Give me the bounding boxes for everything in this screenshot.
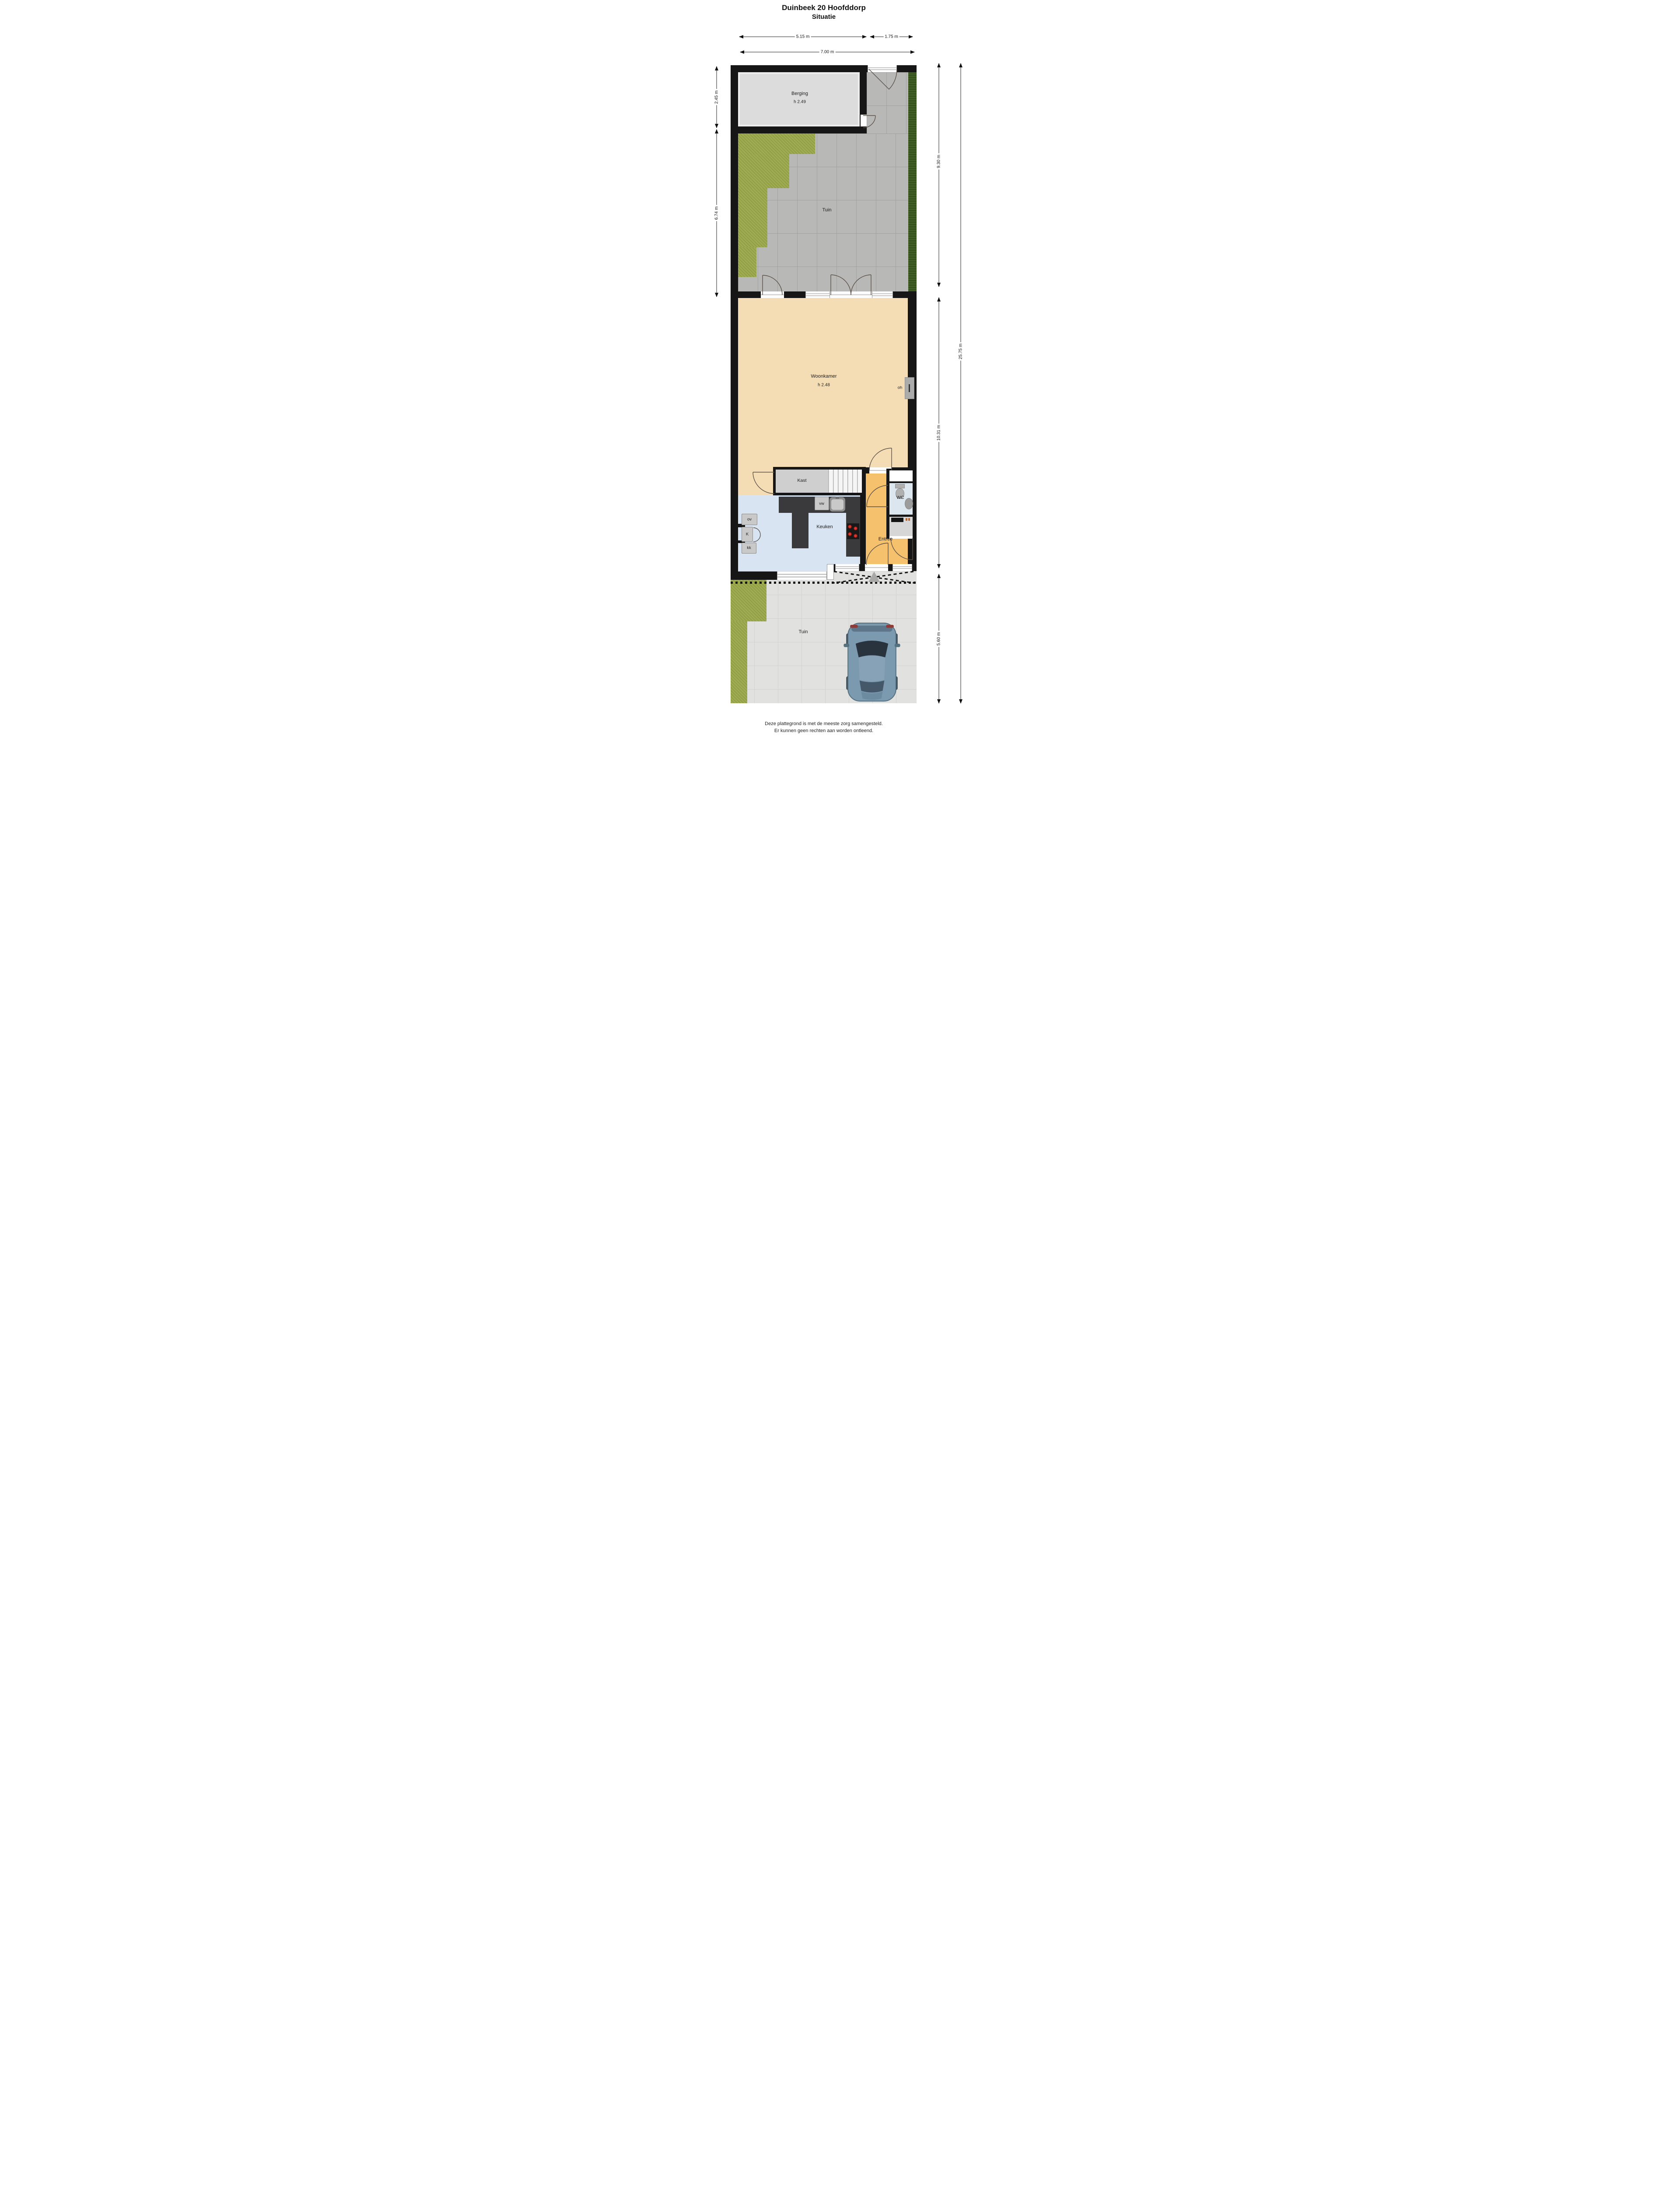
wc-basin: [905, 498, 913, 509]
floorplan-canvas: Duinbeek 20 Hoofddorp Situatie 5.15 m 1.…: [630, 0, 1050, 747]
label-tuin-back: Tuin: [822, 207, 832, 213]
wall-keuken-entree: [860, 495, 866, 564]
front-garden-grass: [731, 580, 766, 621]
dimension-label: 9.30 m: [937, 154, 941, 170]
meterkast-door-opening: [889, 536, 913, 539]
garden-door-opening: [761, 291, 784, 298]
label-vw: vw: [819, 501, 824, 506]
berging-door-opening: [861, 115, 867, 128]
dimension-height-tuin: 6.74 m: [716, 130, 717, 297]
dimension-label: 7.00 m: [819, 50, 836, 55]
window: [892, 564, 912, 571]
label-k: K: [746, 532, 749, 537]
page-subtitle: Situatie: [812, 13, 836, 21]
label-keuken: Keuken: [816, 524, 833, 529]
back-garden-grass: [738, 154, 789, 188]
meter-fuse: [908, 518, 910, 521]
window: [835, 564, 859, 571]
dimension-house-depth: 10.31 m: [938, 298, 939, 568]
label-kast: Kast: [797, 478, 806, 483]
facade-jog: [827, 564, 834, 580]
cooktop: [847, 523, 859, 539]
window: [872, 291, 893, 298]
kitchen-peninsula: [792, 513, 808, 548]
sink-basin: [831, 499, 843, 510]
label-berging-height: h 2.49: [794, 100, 806, 105]
dimension-label: 2.45 m: [714, 89, 719, 105]
oh-unit-detail: [909, 384, 910, 392]
dimension-front-depth: 5.60 m: [938, 574, 939, 703]
meter-panel: [891, 518, 903, 522]
front-door-opening: [865, 564, 888, 571]
sink-faucet: [836, 497, 839, 499]
dimension-label: 5.15 m: [795, 35, 811, 39]
dimension-width-berging: 5.15 m: [739, 36, 866, 37]
room-woonkamer: [738, 298, 908, 495]
dimension-height-berging: 2.45 m: [716, 67, 717, 128]
keuken-window: [777, 572, 827, 580]
dimension-garden-depth: 9.30 m: [938, 63, 939, 287]
label-woonkamer: Woonkamer: [811, 374, 836, 379]
dimension-width-path: 1.75 m: [870, 36, 913, 37]
front-garden-grass: [731, 621, 747, 703]
dimension-label: 1.75 m: [883, 35, 899, 39]
dimension-total-depth: 25.75 m: [960, 63, 961, 703]
dimension-label: 25.75 m: [959, 342, 963, 361]
wall-berging-bottom: [731, 126, 867, 133]
label-kk: kk: [747, 546, 751, 551]
disclaimer-line2: Er kunnen geen rechten aan worden ontlee…: [774, 728, 873, 733]
car: [842, 621, 902, 703]
label-tuin-front: Tuin: [799, 629, 808, 635]
label-entree: Entree: [878, 536, 892, 542]
label-berging: Berging: [791, 91, 808, 96]
toilet-tank: [895, 484, 905, 488]
disclaimer-line1: Deze plattegrond is met de meeste zorg s…: [765, 721, 883, 726]
page-title: Duinbeek 20 Hoofddorp: [782, 4, 866, 12]
dimension-label: 5.60 m: [937, 631, 941, 647]
room-keuken: [738, 564, 827, 572]
window: [805, 291, 830, 298]
label-ov: ov: [747, 517, 752, 522]
back-garden-grass: [738, 188, 767, 247]
label-wc: WC: [896, 495, 904, 500]
dimension-width-total: 7.00 m: [740, 52, 914, 53]
dimension-label: 10.31 m: [937, 424, 941, 442]
side-path-pavers: [867, 72, 908, 133]
back-garden-grass: [738, 133, 815, 154]
french-doors-opening: [830, 291, 872, 298]
meter-fuse: [906, 518, 907, 521]
shaft-box: [889, 470, 913, 481]
label-oh: oh: [898, 386, 903, 390]
property-line-dotted: [731, 582, 917, 584]
wall-left: [731, 65, 738, 580]
label-woonkamer-height: h 2.48: [818, 383, 830, 388]
back-garden-grass: [738, 247, 756, 277]
dimension-label: 6.74 m: [714, 205, 719, 221]
hedge: [908, 72, 917, 291]
staircase: [828, 470, 862, 493]
garden-gate-opening: [868, 65, 897, 72]
